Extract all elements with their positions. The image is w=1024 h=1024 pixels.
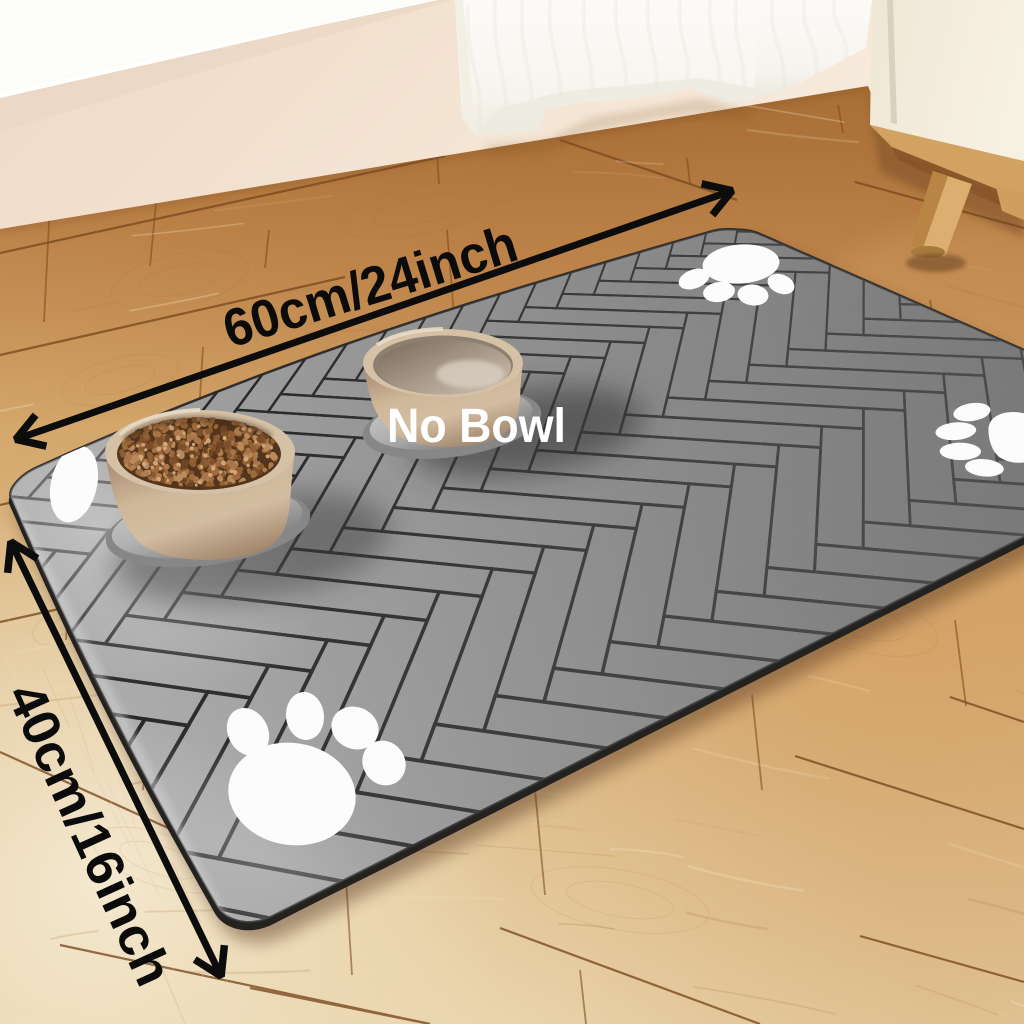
svg-text:No Bowl: No Bowl xyxy=(387,400,566,453)
